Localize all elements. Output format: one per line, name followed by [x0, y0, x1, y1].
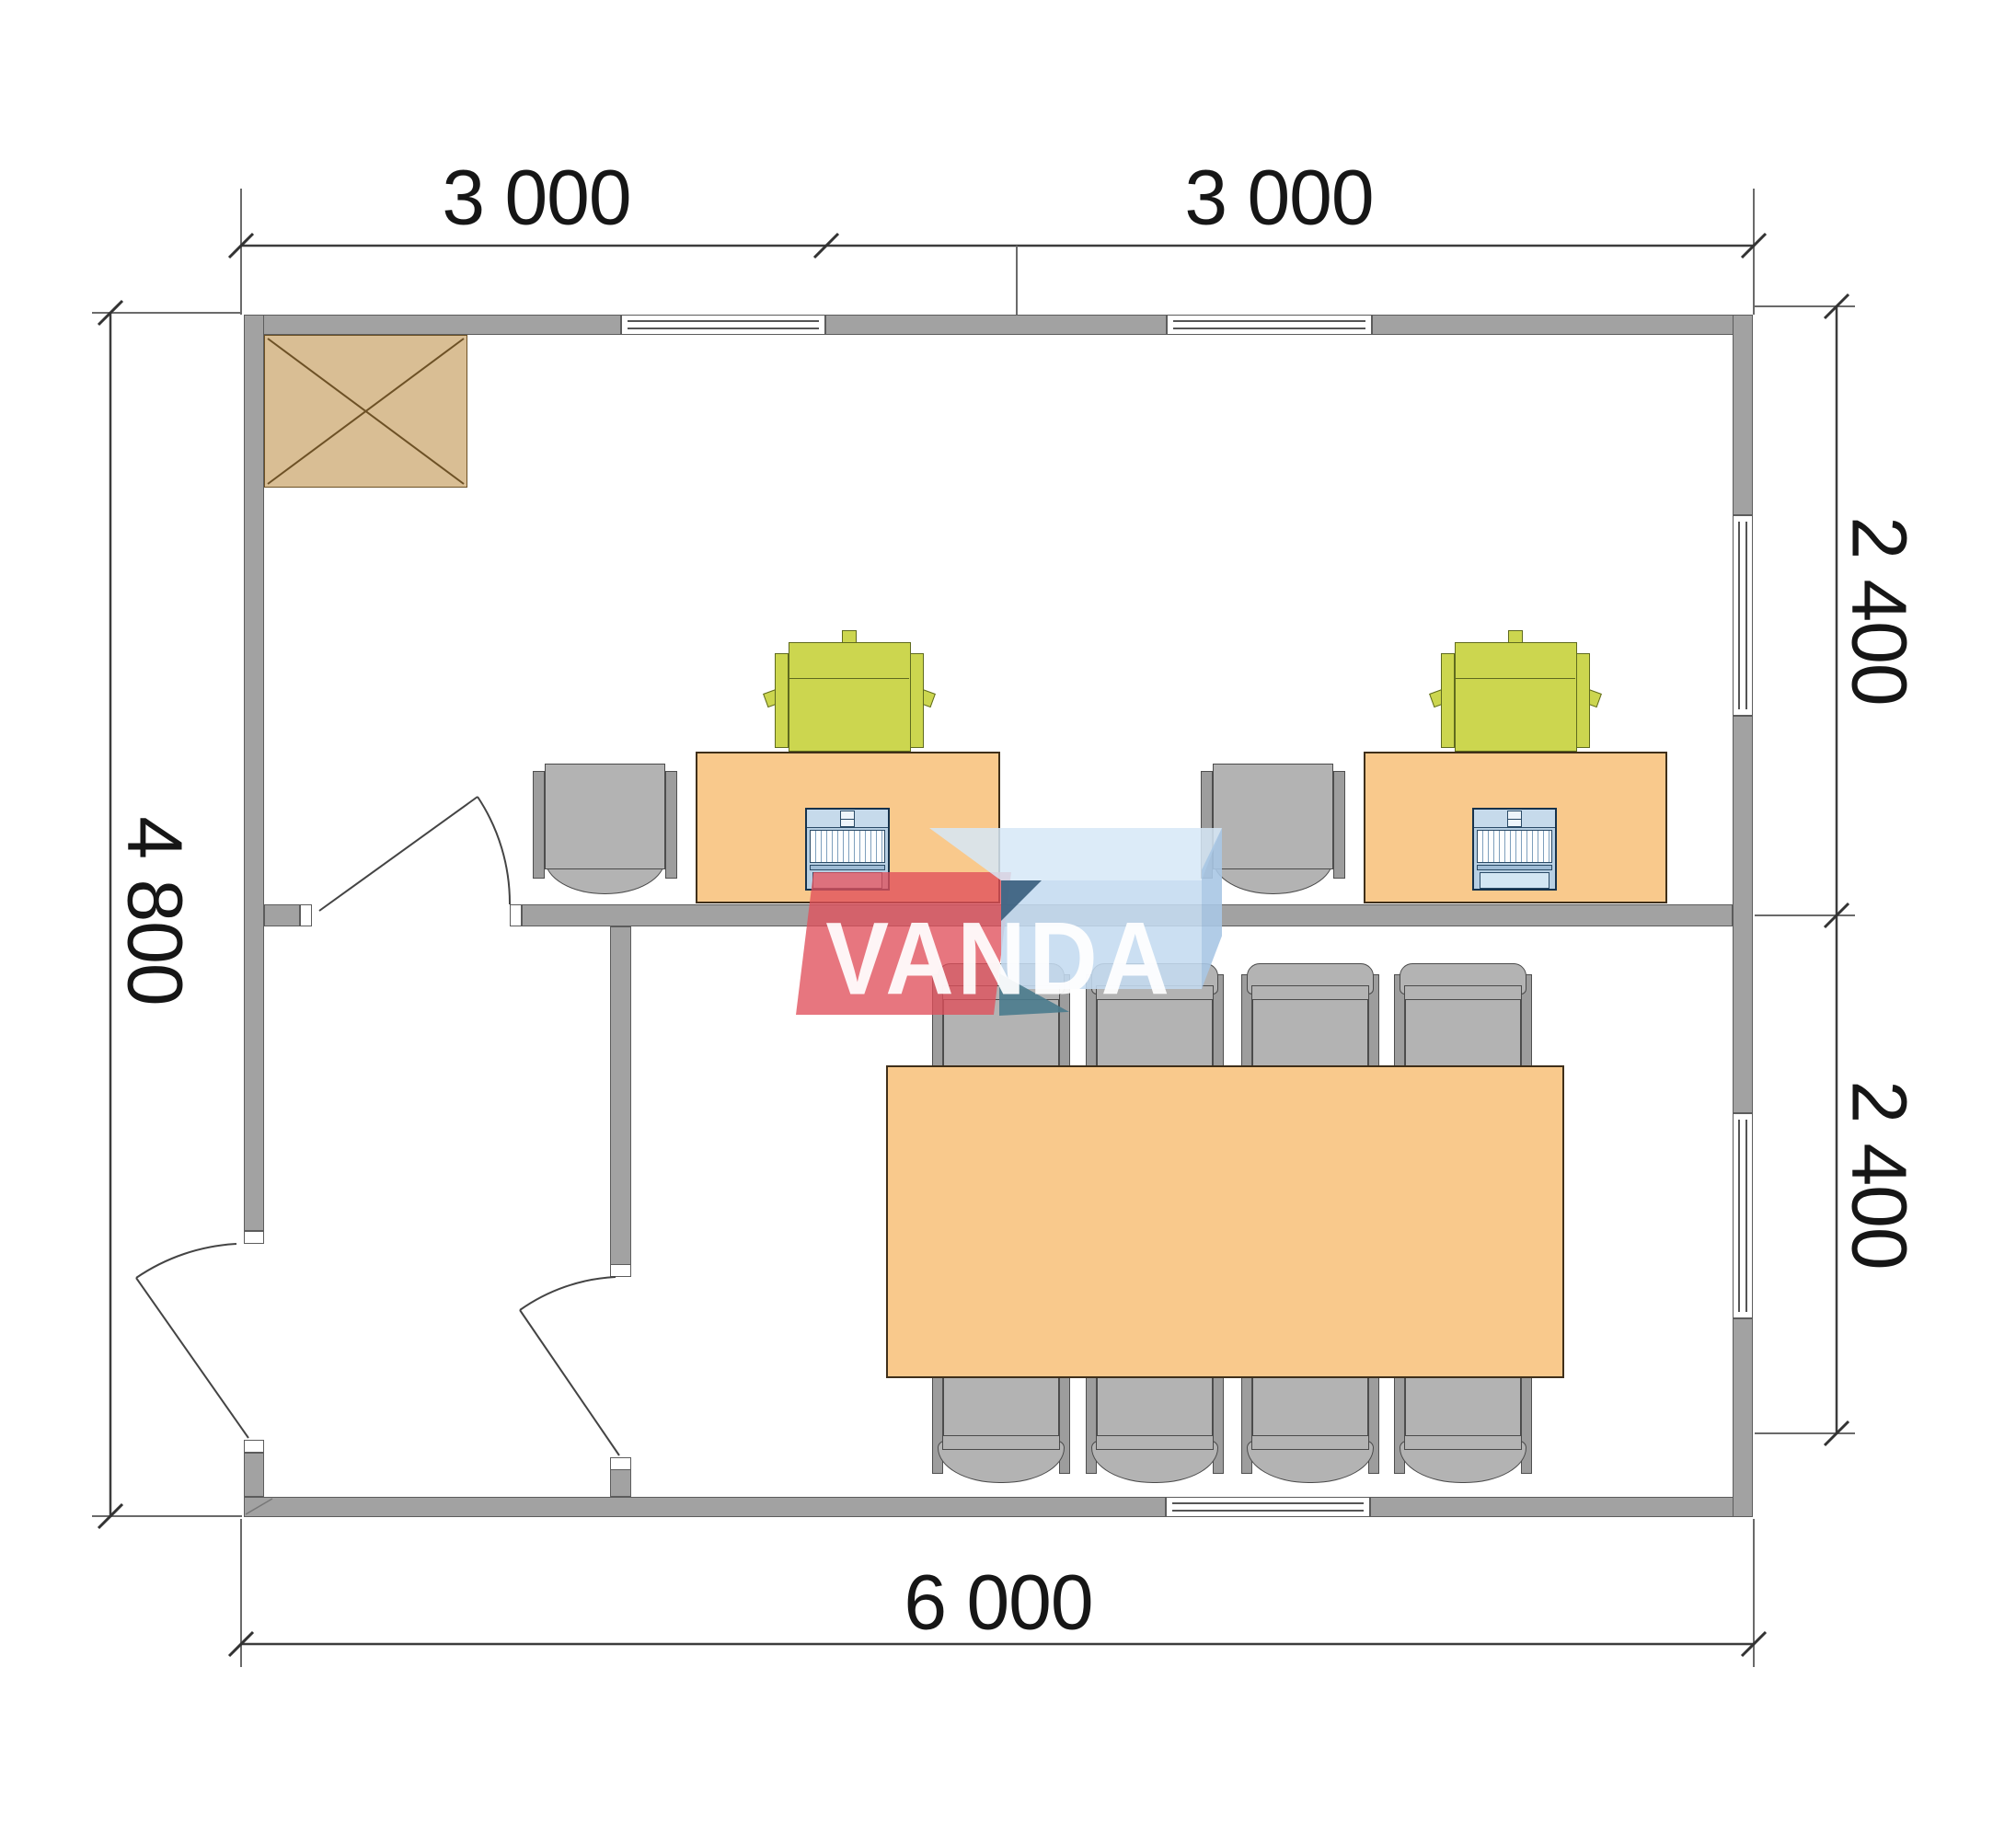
- dim-label-right-lower: 2 400: [1835, 1080, 1924, 1269]
- door-swing-arc: [520, 1277, 616, 1310]
- door-swing-arc: [136, 1244, 236, 1278]
- door-leaf-line: [136, 1278, 248, 1438]
- dim-label-top-right: 3 000: [1184, 154, 1373, 243]
- dim-label-top-left: 3 000: [442, 154, 630, 243]
- door-swing-arc: [478, 797, 510, 904]
- dim-label-left: 4 800: [110, 816, 200, 1005]
- door-leaf-line: [319, 797, 478, 911]
- floor-plan: 3 000 3 000 6 000 4 800 2 400 2 400 VAND…: [0, 0, 2016, 1840]
- door-leaf-line: [520, 1310, 619, 1455]
- vanda-watermark: VANDA: [825, 900, 1172, 1018]
- dim-label-bottom: 6 000: [904, 1558, 1092, 1648]
- wall-corner-hatch: [246, 1499, 272, 1514]
- dim-label-right-upper: 2 400: [1835, 516, 1924, 705]
